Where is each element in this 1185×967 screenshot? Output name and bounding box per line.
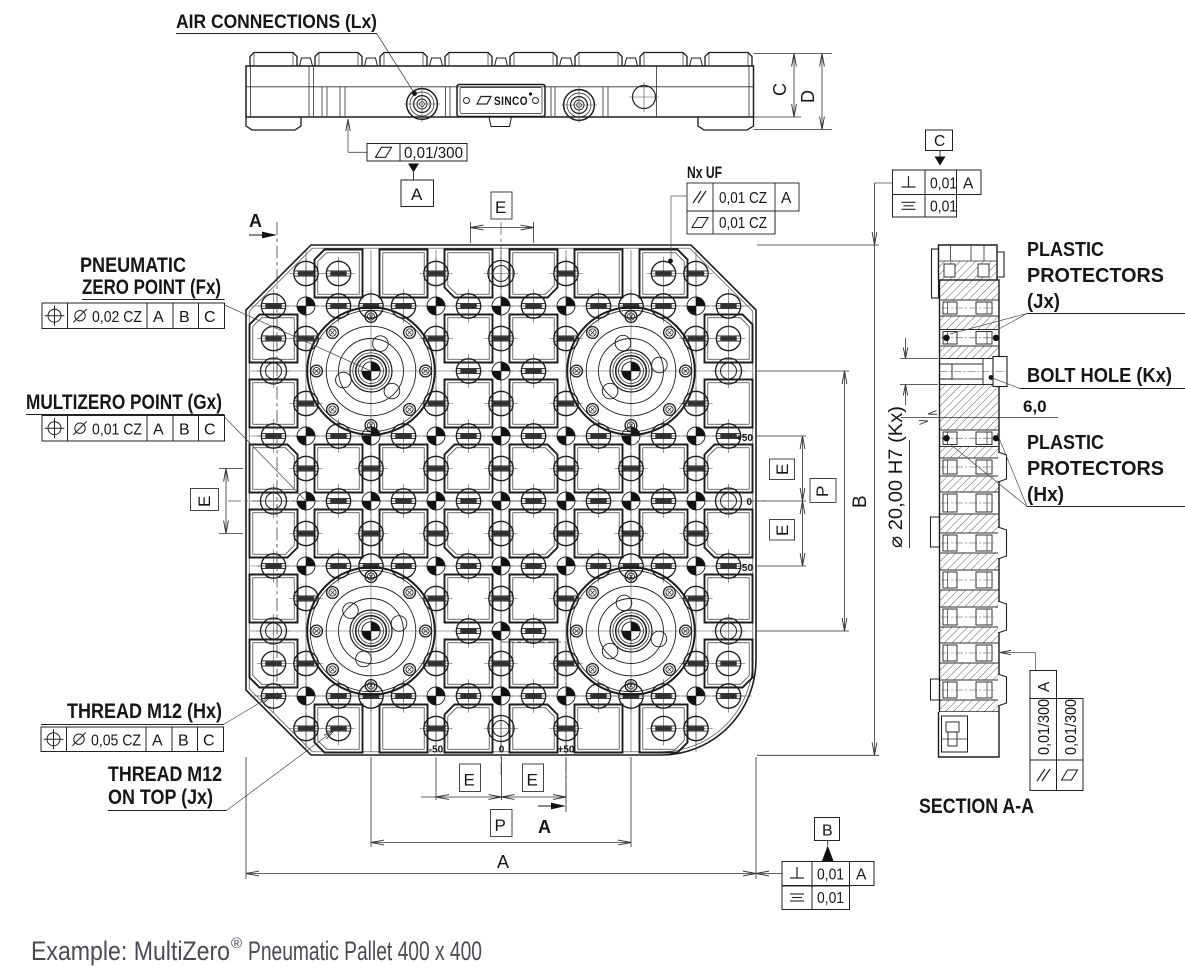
svg-text:-50: -50 [429,745,444,756]
svg-text:B: B [179,309,190,326]
svg-text:0,01: 0,01 [930,176,957,193]
svg-text:PLASTIC: PLASTIC [1027,432,1104,454]
svg-text:PNEUMATIC: PNEUMATIC [80,254,186,277]
svg-text:Example: MultiZero: Example: MultiZero [31,936,230,966]
svg-text:P: P [813,486,832,497]
svg-text:6,0: 6,0 [1023,397,1047,416]
svg-text:0: 0 [499,745,505,756]
svg-text:A: A [153,309,164,326]
svg-text:0,01/300: 0,01/300 [1036,699,1053,755]
svg-text:SINCO: SINCO [494,96,528,108]
svg-text:C: C [934,133,945,150]
svg-text:A: A [249,211,262,231]
svg-text:A: A [1036,681,1053,692]
svg-text:0,01/300: 0,01/300 [404,145,463,162]
svg-text:A: A [856,867,867,884]
svg-text:B: B [822,823,833,840]
svg-text:0: 0 [746,497,752,508]
svg-text:A: A [497,852,509,872]
svg-text:C: C [204,422,216,439]
svg-text:ZERO POINT (Fx): ZERO POINT (Fx) [82,276,221,299]
svg-text:P: P [495,816,506,835]
svg-text:(Hx): (Hx) [1027,484,1064,506]
svg-text:0,01: 0,01 [930,199,957,216]
svg-text:D: D [798,90,818,103]
svg-text:Nx UF: Nx UF [687,164,722,182]
svg-text:E: E [773,525,792,536]
svg-text:0,01: 0,01 [817,890,844,907]
svg-text:B: B [850,495,871,508]
svg-text:B: B [178,733,189,750]
svg-text:PLASTIC: PLASTIC [1027,239,1104,261]
svg-text:0,01: 0,01 [817,867,844,884]
svg-text:0,05 CZ: 0,05 CZ [91,733,141,750]
svg-text:0,01 CZ: 0,01 CZ [719,215,767,232]
svg-text:A: A [781,190,792,207]
svg-text:THREAD M12: THREAD M12 [108,763,222,786]
svg-text:E: E [527,771,538,790]
svg-text:E: E [195,496,214,507]
svg-text:BOLT HOLE (Kx): BOLT HOLE (Kx) [1027,365,1172,387]
svg-text:A: A [411,185,423,204]
svg-text:C: C [203,733,215,750]
svg-text:AIR CONNECTIONS (Lx): AIR CONNECTIONS (Lx) [176,12,377,33]
svg-text:0,01/300: 0,01/300 [1063,699,1080,755]
svg-text:0,01 CZ: 0,01 CZ [92,422,142,439]
svg-text:A: A [152,733,163,750]
svg-text:A: A [153,422,164,439]
svg-text:THREAD M12 (Hx): THREAD M12 (Hx) [67,700,222,723]
svg-text:E: E [773,464,792,475]
svg-text:PROTECTORS: PROTECTORS [1027,265,1164,287]
svg-text:+50: +50 [736,433,753,444]
svg-text:0,02 CZ: 0,02 CZ [92,309,142,326]
svg-text:SECTION A-A: SECTION A-A [919,795,1034,818]
svg-text:E: E [495,198,506,217]
svg-text:C: C [770,83,790,96]
svg-text:MULTIZERO POINT (Gx): MULTIZERO POINT (Gx) [26,391,222,414]
svg-text:Pneumatic Pallet 400 x 400: Pneumatic Pallet 400 x 400 [248,936,482,966]
svg-text:(Jx): (Jx) [1027,291,1060,313]
svg-text:®: ® [231,935,242,952]
svg-text:A: A [963,176,974,193]
svg-text:-50: -50 [739,563,754,574]
svg-text:PROTECTORS: PROTECTORS [1027,458,1164,480]
svg-text:ON TOP (Jx): ON TOP (Jx) [108,786,213,809]
svg-text:A: A [538,817,551,837]
svg-text:C: C [204,309,216,326]
svg-text:B: B [179,422,190,439]
svg-text:+50: +50 [558,745,575,756]
svg-text:⌀ 20,00 H7 (Kx): ⌀ 20,00 H7 (Kx) [886,406,907,548]
svg-text:E: E [464,771,475,790]
svg-text:0,01 CZ: 0,01 CZ [719,190,767,207]
